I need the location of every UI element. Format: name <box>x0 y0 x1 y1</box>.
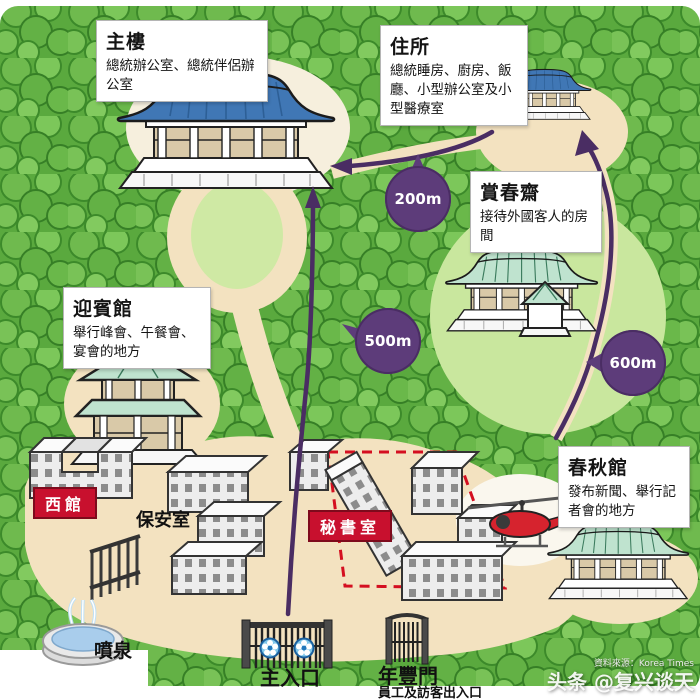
watermark-brand: 头条 @复兴谈天 <box>547 670 694 694</box>
distance-marker-500m: 500m <box>355 308 421 374</box>
annotation-desc: 發布新聞、舉行記者會的地方 <box>568 483 680 521</box>
distance-marker-600m: 600m <box>600 330 666 396</box>
annotation-title: 春秋館 <box>568 453 680 480</box>
watermark-source: 資料來源：Korea Times <box>547 659 694 670</box>
blue-house-map: 主樓 總統辦公室、總統伴侶辦公室 住所 總統睡房、廚房、飯廳、小型辦公室及小型醫… <box>0 0 700 700</box>
annotation-desc: 接待外國客人的房間 <box>480 208 592 246</box>
yeonpung-gate-desc: 員工及訪客出入口 <box>378 682 482 700</box>
security-office-label: 保安室 <box>136 506 190 532</box>
gate-flower-emblem <box>261 639 280 658</box>
secretary-office-tag: 秘書室 <box>308 510 392 542</box>
gate-flower-emblem <box>295 639 314 658</box>
annotation-title: 迎賓館 <box>73 294 201 321</box>
annotation-title: 住所 <box>390 32 518 59</box>
distance-marker-200m: 200m <box>385 166 451 232</box>
annotation-residence: 住所 總統睡房、廚房、飯廳、小型辦公室及小型醫療室 <box>380 25 528 126</box>
annotation-title: 主樓 <box>106 27 258 54</box>
annotation-chunchugwan: 春秋館 發布新聞、舉行記者會的地方 <box>558 446 690 528</box>
driveway-inner-lawn <box>191 181 283 289</box>
annotation-sangchunjae: 賞春齋 接待外國客人的房間 <box>470 171 602 253</box>
annotation-desc: 舉行峰會、午餐會、宴會的地方 <box>73 324 201 362</box>
main-entrance-label: 主入口 <box>260 662 320 691</box>
annotation-guest-house: 迎賓館 舉行峰會、午餐會、宴會的地方 <box>63 287 211 369</box>
annotation-desc: 總統辦公室、總統伴侶辦公室 <box>106 57 258 95</box>
west-hall-tag: 西館 <box>33 487 97 519</box>
annotation-main-building: 主樓 總統辦公室、總統伴侶辦公室 <box>96 20 268 102</box>
annotation-desc: 總統睡房、廚房、飯廳、小型辦公室及小型醫療室 <box>390 62 518 119</box>
watermark: 資料來源：Korea Times 头条 @复兴谈天 <box>547 659 694 694</box>
fountain-label: 噴泉 <box>94 636 132 663</box>
annotation-title: 賞春齋 <box>480 178 592 205</box>
